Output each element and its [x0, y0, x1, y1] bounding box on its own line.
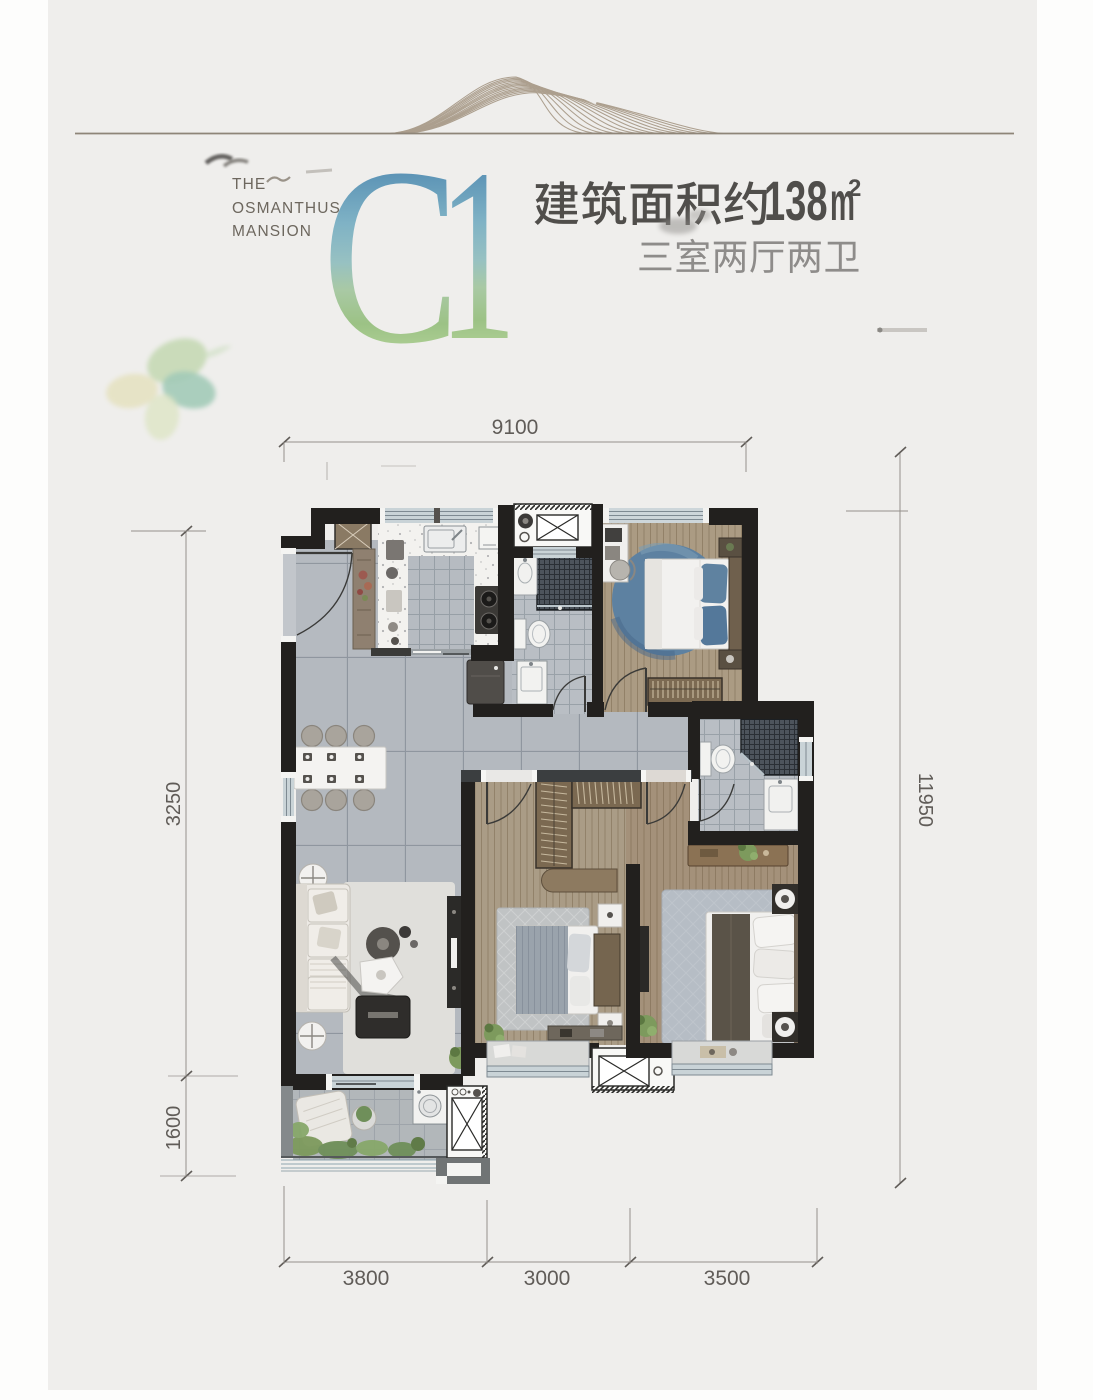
svg-text:3800: 3800 — [343, 1267, 390, 1290]
svg-text:138: 138 — [764, 171, 828, 233]
svg-text:1: 1 — [438, 118, 517, 392]
svg-text:9100: 9100 — [492, 416, 539, 439]
svg-text:3250: 3250 — [163, 782, 185, 827]
svg-text:11950: 11950 — [914, 773, 936, 827]
svg-text:3000: 3000 — [524, 1267, 571, 1290]
svg-text:1600: 1600 — [163, 1106, 185, 1151]
svg-text:MANSION: MANSION — [232, 223, 312, 240]
svg-text:3500: 3500 — [704, 1267, 751, 1290]
svg-text:THE: THE — [232, 176, 266, 193]
svg-text:2: 2 — [848, 175, 861, 202]
